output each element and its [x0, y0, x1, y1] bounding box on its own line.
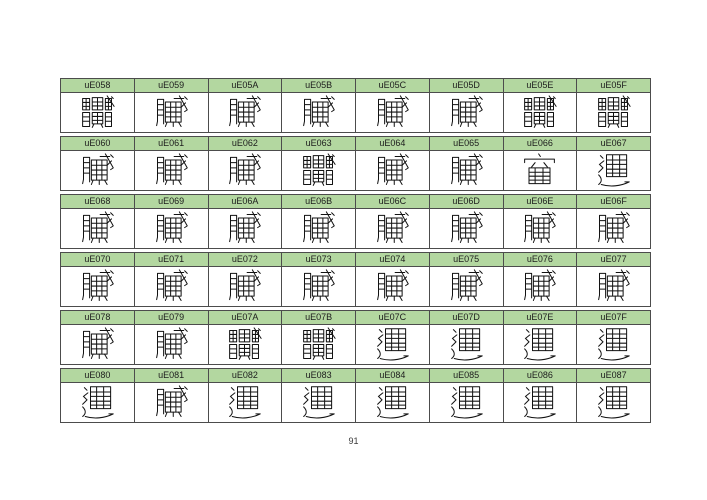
cjk-dense-lr-glyph-icon — [154, 385, 189, 420]
code-label-cell: uE066 — [504, 137, 578, 150]
code-row-group: uE058uE059uE05AuE05BuE05CuE05DuE05EuE05F — [60, 78, 651, 133]
glyph-cell — [356, 209, 430, 248]
cjk-dense-lr-glyph-icon — [522, 211, 557, 246]
code-label-cell: uE082 — [209, 369, 283, 382]
code-label-cell: uE070 — [61, 253, 135, 266]
cjk-dense-lr-glyph-icon — [375, 269, 410, 304]
code-label-cell: uE081 — [135, 369, 209, 382]
glyph-cell — [356, 93, 430, 132]
glyph-cell — [61, 93, 135, 132]
glyph-cell — [356, 267, 430, 306]
glyph-cell — [135, 93, 209, 132]
glyph-cell — [430, 93, 504, 132]
glyph-cell — [135, 267, 209, 306]
glyph-cell — [430, 151, 504, 190]
cjk-dense-lr-glyph-icon — [80, 327, 115, 362]
glyph-cell — [209, 383, 283, 422]
glyph-cell — [282, 383, 356, 422]
cjk-dense-lr-glyph-icon — [301, 269, 336, 304]
code-label-cell: uE065 — [430, 137, 504, 150]
code-row-group: uE060uE061uE062uE063uE064uE065uE066uE067 — [60, 136, 651, 191]
cjk-dense-lr-glyph-icon — [301, 95, 336, 130]
glyph-cell — [135, 325, 209, 364]
glyph-cell — [430, 209, 504, 248]
glyph-specimen-table: uE058uE059uE05AuE05BuE05CuE05DuE05EuE05F… — [60, 78, 651, 426]
code-label-cell: uE06C — [356, 195, 430, 208]
glyph-cell — [61, 267, 135, 306]
code-label-cell: uE069 — [135, 195, 209, 208]
glyph-cell — [504, 93, 578, 132]
code-label-cell: uE06E — [504, 195, 578, 208]
glyph-cell — [282, 325, 356, 364]
cjk-dense-lr-glyph-icon — [375, 211, 410, 246]
code-header-row: uE060uE061uE062uE063uE064uE065uE066uE067 — [60, 136, 651, 151]
glyph-cell — [577, 325, 651, 364]
cjk-dense-walk-glyph-icon — [301, 385, 336, 420]
code-label-cell: uE06F — [577, 195, 651, 208]
cjk-dense-lr-glyph-icon — [522, 269, 557, 304]
cjk-dense-lr-glyph-icon — [154, 269, 189, 304]
code-label-cell: uE075 — [430, 253, 504, 266]
glyph-cell — [577, 267, 651, 306]
glyph-cell — [577, 93, 651, 132]
cjk-dense-walk-glyph-icon — [596, 327, 631, 362]
glyph-cell — [209, 93, 283, 132]
code-label-cell: uE064 — [356, 137, 430, 150]
page-number: 91 — [0, 436, 707, 446]
cjk-dense-stack-glyph-icon — [522, 95, 557, 130]
cjk-dense-lr-glyph-icon — [227, 95, 262, 130]
glyph-cell — [61, 209, 135, 248]
code-label-cell: uE07B — [282, 311, 356, 324]
document-page: uE058uE059uE05AuE05BuE05CuE05DuE05EuE05F… — [0, 0, 707, 500]
code-label-cell: uE07E — [504, 311, 578, 324]
glyph-row — [60, 151, 651, 191]
glyph-cell — [577, 209, 651, 248]
glyph-cell — [209, 151, 283, 190]
code-row-group: uE080uE081uE082uE083uE084uE085uE086uE087 — [60, 368, 651, 423]
cjk-dense-lr-glyph-icon — [80, 269, 115, 304]
glyph-cell — [282, 267, 356, 306]
cjk-dense-lr-glyph-icon — [449, 95, 484, 130]
cjk-dense-roof-glyph-icon — [522, 153, 557, 188]
code-label-cell: uE07D — [430, 311, 504, 324]
glyph-cell — [577, 383, 651, 422]
code-label-cell: uE060 — [61, 137, 135, 150]
code-label-cell: uE07F — [577, 311, 651, 324]
cjk-dense-walk-glyph-icon — [522, 327, 557, 362]
cjk-dense-lr-glyph-icon — [449, 269, 484, 304]
code-label-cell: uE05A — [209, 79, 283, 92]
glyph-cell — [504, 151, 578, 190]
code-row-group: uE070uE071uE072uE073uE074uE075uE076uE077 — [60, 252, 651, 307]
cjk-dense-lr-glyph-icon — [80, 153, 115, 188]
glyph-cell — [577, 151, 651, 190]
glyph-cell — [209, 267, 283, 306]
glyph-row — [60, 267, 651, 307]
glyph-cell — [135, 151, 209, 190]
glyph-cell — [209, 325, 283, 364]
cjk-dense-walk-glyph-icon — [596, 385, 631, 420]
cjk-dense-lr-glyph-icon — [154, 327, 189, 362]
code-label-cell: uE062 — [209, 137, 283, 150]
code-header-row: uE068uE069uE06AuE06BuE06CuE06DuE06EuE06F — [60, 194, 651, 209]
code-label-cell: uE07A — [209, 311, 283, 324]
cjk-dense-lr-glyph-icon — [596, 211, 631, 246]
code-label-cell: uE068 — [61, 195, 135, 208]
code-label-cell: uE078 — [61, 311, 135, 324]
glyph-cell — [356, 325, 430, 364]
cjk-dense-stack-glyph-icon — [301, 153, 336, 188]
code-label-cell: uE067 — [577, 137, 651, 150]
cjk-dense-walk-glyph-icon — [449, 327, 484, 362]
code-label-cell: uE05C — [356, 79, 430, 92]
cjk-dense-lr-glyph-icon — [227, 269, 262, 304]
code-label-cell: uE084 — [356, 369, 430, 382]
glyph-cell — [504, 267, 578, 306]
code-label-cell: uE07C — [356, 311, 430, 324]
glyph-cell — [504, 325, 578, 364]
cjk-dense-walk-glyph-icon — [375, 327, 410, 362]
code-label-cell: uE05F — [577, 79, 651, 92]
glyph-cell — [61, 151, 135, 190]
code-label-cell: uE087 — [577, 369, 651, 382]
cjk-dense-lr-glyph-icon — [375, 153, 410, 188]
glyph-cell — [430, 383, 504, 422]
code-label-cell: uE05B — [282, 79, 356, 92]
code-header-row: uE078uE079uE07AuE07BuE07CuE07DuE07EuE07F — [60, 310, 651, 325]
cjk-dense-lr-glyph-icon — [154, 95, 189, 130]
code-label-cell: uE076 — [504, 253, 578, 266]
glyph-cell — [282, 151, 356, 190]
glyph-cell — [61, 325, 135, 364]
glyph-cell — [430, 267, 504, 306]
code-row-group: uE068uE069uE06AuE06BuE06CuE06DuE06EuE06F — [60, 194, 651, 249]
glyph-row — [60, 209, 651, 249]
glyph-cell — [282, 93, 356, 132]
glyph-cell — [504, 209, 578, 248]
glyph-row — [60, 93, 651, 133]
cjk-dense-walk-glyph-icon — [449, 385, 484, 420]
cjk-dense-lr-glyph-icon — [596, 269, 631, 304]
code-label-cell: uE05E — [504, 79, 578, 92]
code-label-cell: uE086 — [504, 369, 578, 382]
glyph-cell — [135, 209, 209, 248]
code-label-cell: uE080 — [61, 369, 135, 382]
code-label-cell: uE06D — [430, 195, 504, 208]
cjk-dense-walk-glyph-icon — [522, 385, 557, 420]
glyph-cell — [61, 383, 135, 422]
code-label-cell: uE063 — [282, 137, 356, 150]
code-label-cell: uE05D — [430, 79, 504, 92]
code-label-cell: uE059 — [135, 79, 209, 92]
code-label-cell: uE06B — [282, 195, 356, 208]
glyph-cell — [356, 383, 430, 422]
cjk-dense-lr-glyph-icon — [449, 211, 484, 246]
code-label-cell: uE071 — [135, 253, 209, 266]
code-label-cell: uE083 — [282, 369, 356, 382]
code-label-cell: uE077 — [577, 253, 651, 266]
code-label-cell: uE06A — [209, 195, 283, 208]
glyph-row — [60, 383, 651, 423]
cjk-dense-lr-glyph-icon — [449, 153, 484, 188]
cjk-dense-lr-glyph-icon — [154, 211, 189, 246]
glyph-cell — [209, 209, 283, 248]
glyph-cell — [282, 209, 356, 248]
glyph-cell — [135, 383, 209, 422]
cjk-dense-lr-glyph-icon — [301, 211, 336, 246]
code-row-group: uE078uE079uE07AuE07BuE07CuE07DuE07EuE07F — [60, 310, 651, 365]
cjk-dense-lr-glyph-icon — [227, 211, 262, 246]
cjk-dense-walk-glyph-icon — [80, 385, 115, 420]
cjk-dense-walk-glyph-icon — [375, 385, 410, 420]
cjk-dense-stack-glyph-icon — [301, 327, 336, 362]
code-label-cell: uE058 — [61, 79, 135, 92]
code-header-row: uE070uE071uE072uE073uE074uE075uE076uE077 — [60, 252, 651, 267]
code-label-cell: uE072 — [209, 253, 283, 266]
glyph-cell — [430, 325, 504, 364]
code-label-cell: uE061 — [135, 137, 209, 150]
cjk-dense-lr-glyph-icon — [80, 211, 115, 246]
cjk-dense-walk-glyph-icon — [596, 153, 631, 188]
code-label-cell: uE079 — [135, 311, 209, 324]
cjk-dense-walk-glyph-icon — [227, 385, 262, 420]
cjk-dense-lr-glyph-icon — [375, 95, 410, 130]
cjk-dense-lr-glyph-icon — [154, 153, 189, 188]
cjk-dense-stack-glyph-icon — [596, 95, 631, 130]
cjk-dense-stack-glyph-icon — [227, 327, 262, 362]
code-label-cell: uE073 — [282, 253, 356, 266]
code-header-row: uE080uE081uE082uE083uE084uE085uE086uE087 — [60, 368, 651, 383]
code-label-cell: uE085 — [430, 369, 504, 382]
code-label-cell: uE074 — [356, 253, 430, 266]
glyph-cell — [504, 383, 578, 422]
cjk-dense-lr-glyph-icon — [227, 153, 262, 188]
cjk-dense-stack-glyph-icon — [80, 95, 115, 130]
glyph-row — [60, 325, 651, 365]
glyph-cell — [356, 151, 430, 190]
code-header-row: uE058uE059uE05AuE05BuE05CuE05DuE05EuE05F — [60, 78, 651, 93]
